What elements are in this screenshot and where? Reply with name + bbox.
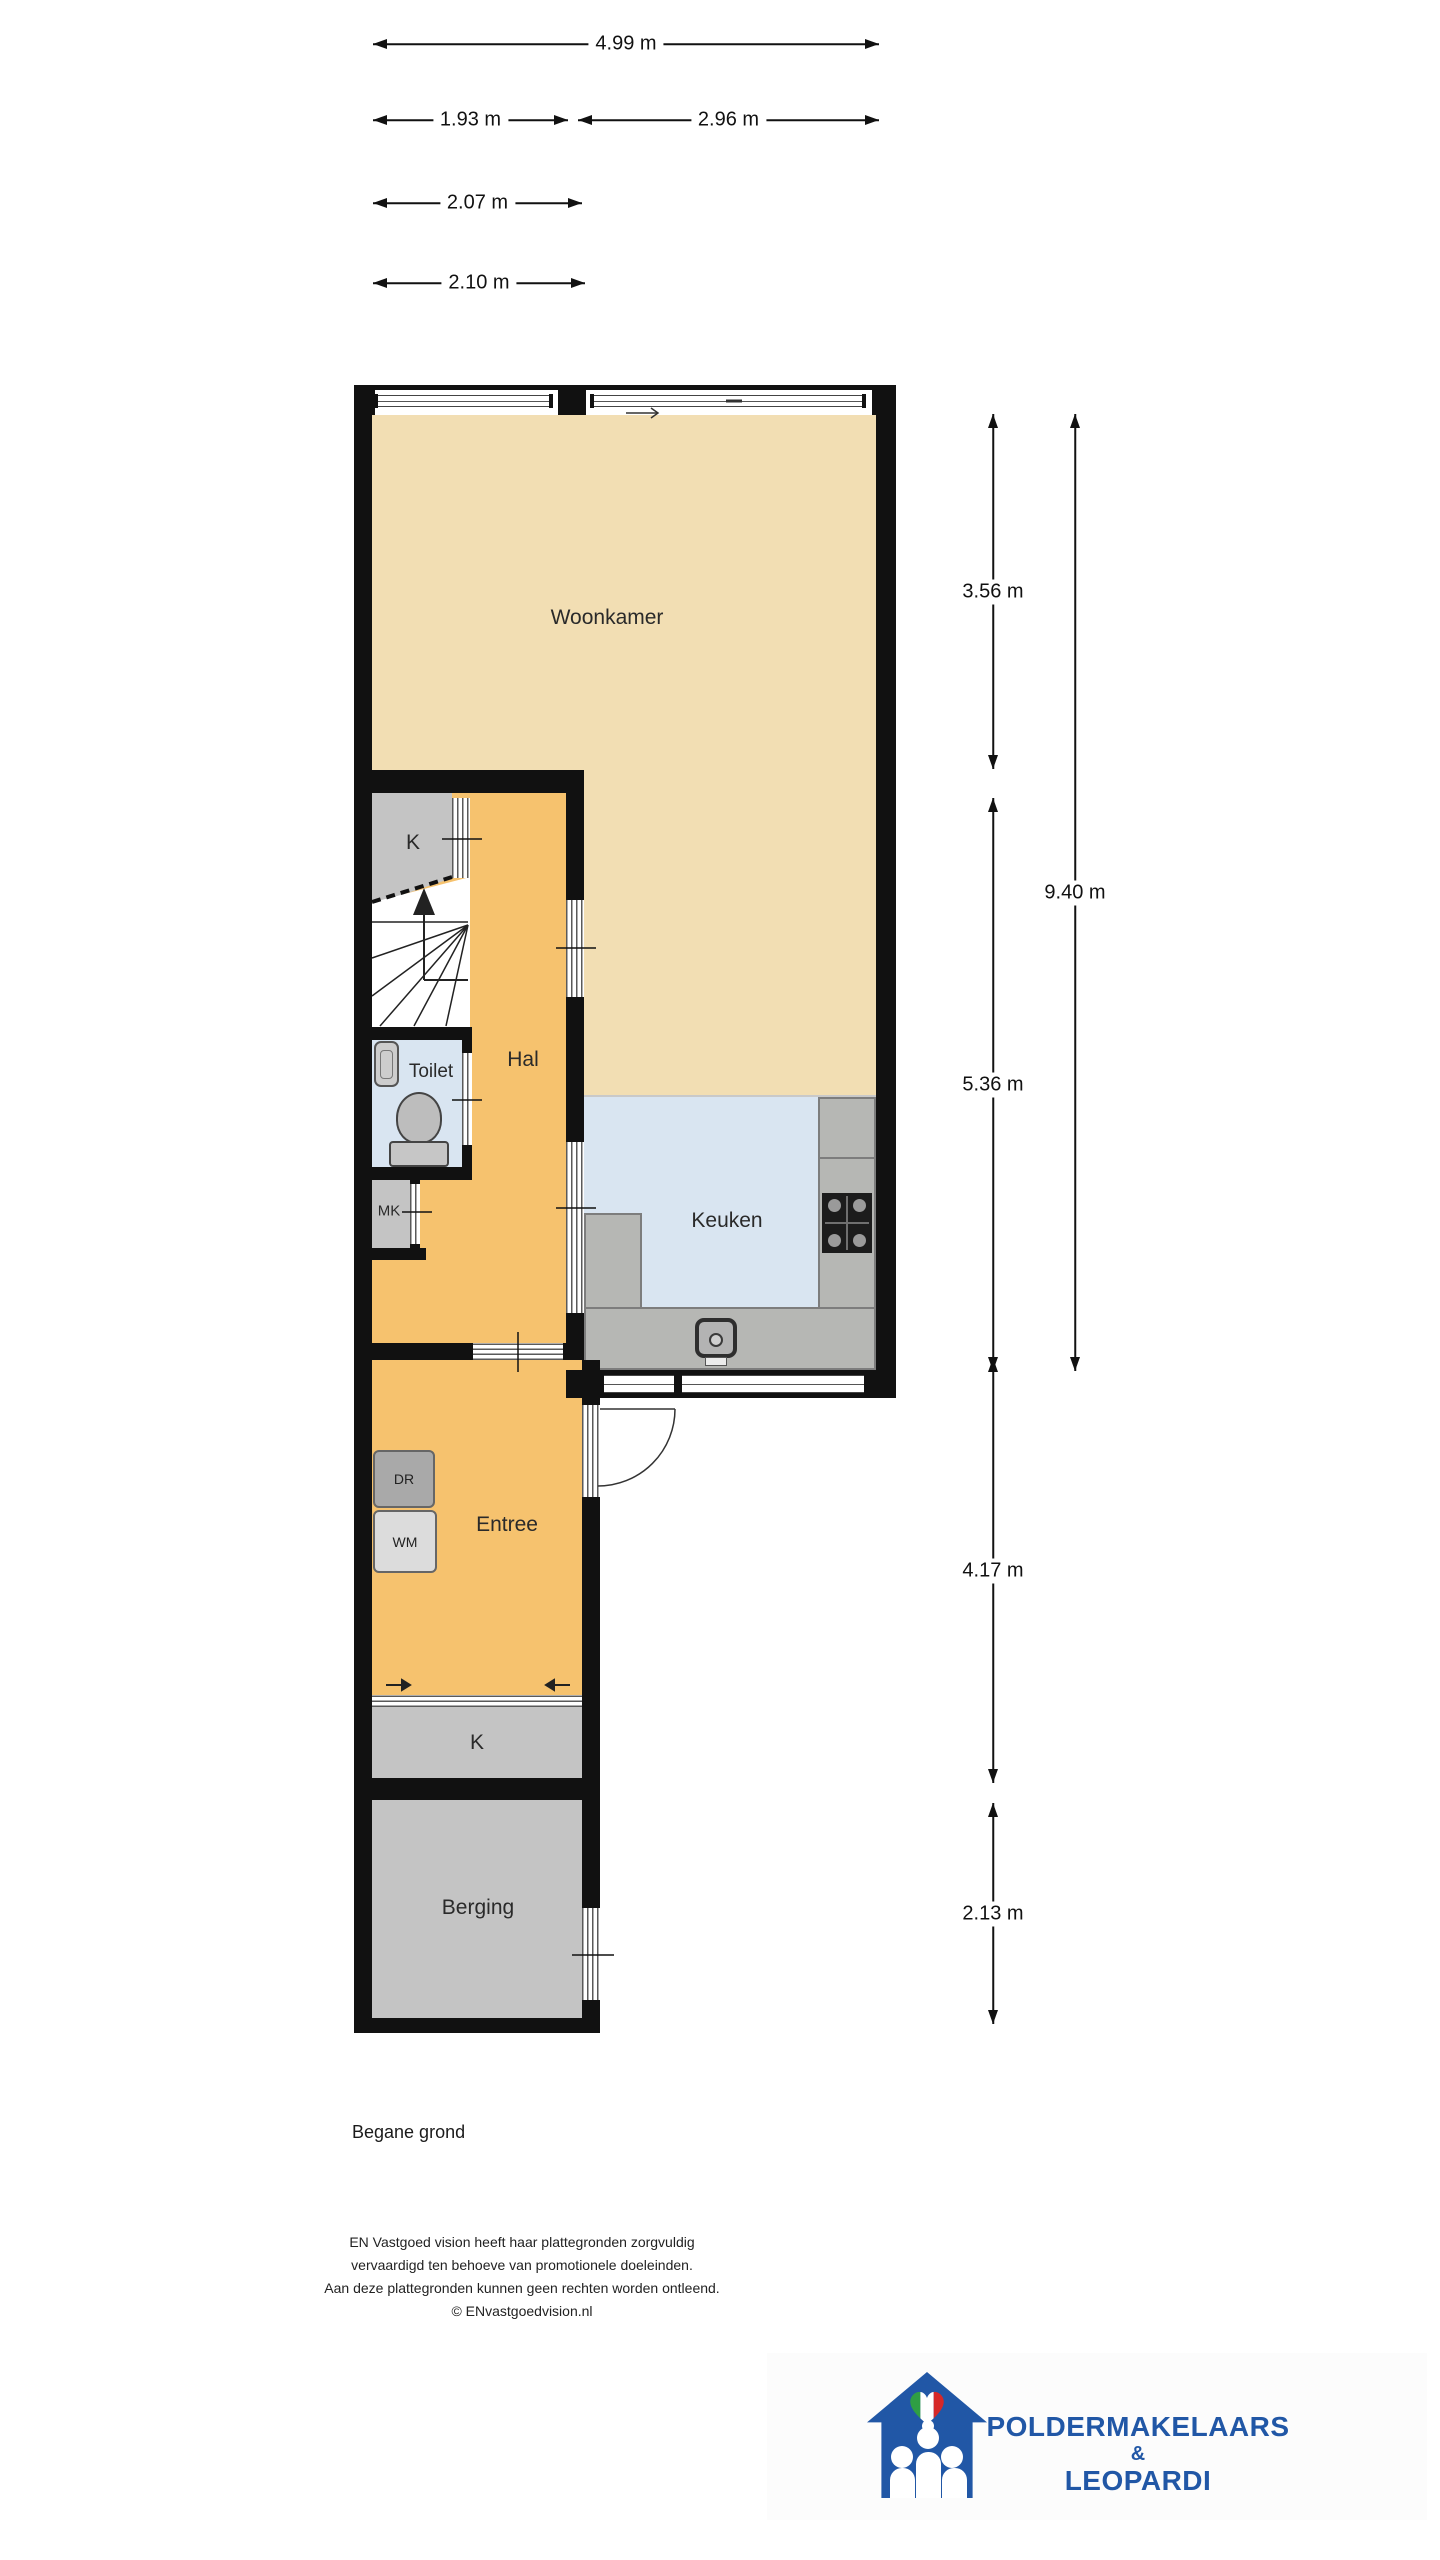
arrowhead-down-icon [1070,1357,1080,1371]
dim-label: 1.93 m [433,108,508,133]
room-label-toilet: Toilet [409,1061,453,1083]
woonkamer-floor [372,412,876,772]
cooktop-grid [846,1196,848,1250]
room-label-mk: MK [378,1203,401,1220]
dim-arrow-296: 2.96 m [578,112,879,128]
front-door [582,1405,600,1497]
room-label-berging: Berging [442,1896,514,1920]
wall-top-pier [558,385,586,415]
woonkamer-floor-lower [584,770,876,1097]
dim-label: 5.36 m [955,1072,1030,1097]
dim-label: 9.40 m [1037,880,1112,905]
arrowhead-right-icon [554,115,568,125]
entree-threshold [372,1695,582,1707]
dim-label: 2.13 m [955,1901,1030,1926]
window-top-left [377,395,553,407]
window-mullion [674,1373,682,1395]
door-mk [410,1184,420,1244]
stairs-floor [372,877,470,1027]
dim-arrow-total-width: 4.99 m [373,36,879,52]
dim-arrow-356: 3.56 m [985,414,1001,769]
arrowhead-left-icon [373,198,387,208]
dim-arrow-210: 2.10 m [373,275,585,291]
dim-arrow-207: 2.07 m [373,195,582,211]
arrowhead-left-icon [373,39,387,49]
dim-arrow-536: 5.36 m [985,798,1001,1371]
toilet-sink [374,1041,399,1087]
door-toilet [462,1053,472,1145]
burner-icon [828,1199,841,1212]
interior-window-hal-woonkamer [566,900,584,997]
window-end-tick [862,394,866,408]
person-body-icon [890,2468,915,2498]
door-berging [582,1908,600,2000]
wc-bowl [396,1092,442,1144]
disclaimer-block: EN Vastgoed vision heeft haar plattegron… [222,2231,822,2323]
dim-label: 4.99 m [588,32,663,57]
person-body-icon [942,2468,967,2498]
arrowhead-right-icon [865,115,879,125]
opening-hal-entree [473,1343,563,1360]
window-end-tick [600,1374,604,1394]
arrowhead-down-icon [988,1769,998,1783]
room-label-closet-top: K [406,831,420,855]
dim-label: 2.07 m [440,191,515,216]
logo-name-top: POLDERMAKELAARS [983,2412,1293,2442]
dim-arrow-193: 1.93 m [373,112,568,128]
person-body-icon [916,2452,941,2498]
washing-machine: WM [373,1510,437,1573]
dim-label: 4.17 m [955,1558,1030,1583]
wall-bottom [354,2018,600,2033]
arrowhead-down-icon [988,755,998,769]
dryer-label: DR [394,1471,414,1487]
burner-icon [853,1199,866,1212]
wall-mk-bottom [354,1248,426,1260]
arrowhead-right-icon [568,198,582,208]
arrowhead-left-icon [373,115,387,125]
person-head-icon [941,2446,963,2468]
wall-top-corner-left [354,385,375,415]
arrowhead-right-icon [571,278,585,288]
arrowhead-left-icon [373,278,387,288]
room-label-hal: Hal [507,1048,539,1072]
window-end-tick [864,1374,868,1394]
dim-label: 3.56 m [955,579,1030,604]
wall-toilet-bottom [354,1167,472,1180]
arrowhead-up-icon [988,414,998,428]
burner-icon [853,1234,866,1247]
logo-wordmark: POLDERMAKELAARS & LEOPARDI [983,2412,1293,2496]
arrowhead-down-icon [988,2010,998,2024]
disclaimer-line: Aan deze plattegronden kunnen geen recht… [222,2277,822,2300]
disclaimer-line: vervaardigd ten behoeve van promotionele… [222,2254,822,2277]
door-closet-top [452,798,470,878]
wall-right [876,385,896,1398]
kitchen-counter-left [584,1213,642,1309]
dim-arrow-940: 9.40 m [1067,414,1083,1371]
wall-closet-berging [354,1778,600,1800]
window-keuken [602,1375,868,1393]
arrowhead-up-icon [988,1358,998,1372]
wc-base [389,1141,449,1167]
burner-icon [828,1234,841,1247]
window-end-tick [590,394,594,408]
copyright-line: © ENvastgoedvision.nl [222,2300,822,2323]
arrowhead-up-icon [1070,414,1080,428]
kitchen-tap [705,1357,727,1366]
arrowhead-up-icon [988,1803,998,1817]
kitchen-sink [695,1318,737,1358]
washing-machine-label: WM [393,1534,418,1550]
window-top-right [590,395,866,407]
wall-woonkamer-closet [354,770,584,793]
dim-label: 2.10 m [441,271,516,296]
window-end-tick [375,394,378,408]
disclaimer-line: EN Vastgoed vision heeft haar plattegron… [222,2231,822,2254]
room-label-keuken: Keuken [691,1209,762,1233]
person-head-icon [891,2446,913,2468]
room-label-woonkamer: Woonkamer [551,606,664,630]
dim-arrow-213: 2.13 m [985,1803,1001,2024]
room-label-entree: Entree [476,1513,538,1537]
logo-ampersand: & [983,2442,1293,2466]
floorplan-page: 4.99 m 1.93 m 2.96 m 2.07 m 2.10 m 3.56 … [0,0,1440,2560]
dryer: DR [373,1450,435,1508]
dim-arrow-417: 4.17 m [985,1358,1001,1783]
logo-name-bottom: LEOPARDI [983,2466,1293,2496]
arrowhead-right-icon [865,39,879,49]
room-label-closet-bottom: K [470,1731,484,1755]
arrowhead-left-icon [578,115,592,125]
wall-stairs-toilet [354,1027,472,1040]
window-end-tick [549,394,553,408]
person-head-icon [917,2427,939,2449]
door-hal-keuken [566,1142,584,1313]
flag-heart-icon [907,2390,947,2424]
floor-title: Begane grond [352,2122,465,2143]
dim-label: 2.96 m [691,108,766,133]
arrowhead-up-icon [988,798,998,812]
cooktop [822,1193,872,1253]
logo-house-icon [867,2372,987,2498]
sink-drain-icon [709,1333,723,1347]
